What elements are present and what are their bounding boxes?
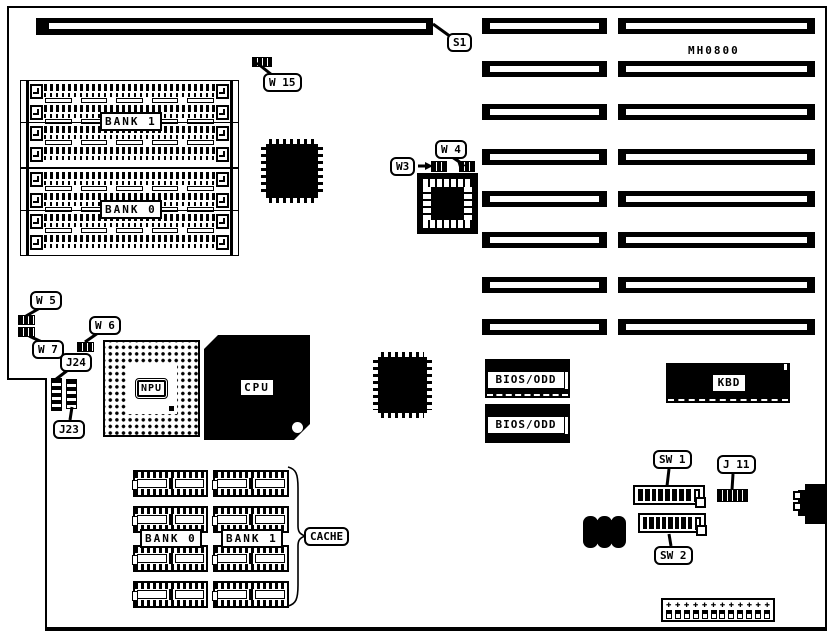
bank-edge-left — [26, 169, 29, 255]
power-pin-square — [728, 613, 734, 619]
simm-clip-right — [216, 105, 229, 120]
simm-clip-right — [216, 126, 229, 141]
switch-position-on — [665, 489, 670, 501]
expansion-slot — [482, 191, 607, 207]
switch-position-on — [681, 517, 685, 529]
expansion-slot — [482, 18, 607, 34]
simm-socket-row — [38, 235, 221, 248]
sw2-callout-tail — [669, 534, 671, 546]
qfp-chip-top — [266, 144, 318, 198]
simm-clip-left — [30, 214, 43, 229]
board-edge-left-lower — [45, 378, 47, 629]
board-edge-step — [7, 378, 47, 380]
simm-clip-left — [30, 105, 43, 120]
callout-cache: CACHE — [304, 527, 349, 546]
expansion-slot — [618, 104, 815, 120]
expansion-slot — [618, 149, 815, 165]
expansion-slot-key — [626, 196, 807, 202]
cache-dip-socket — [133, 545, 208, 572]
switch-position-on — [662, 517, 666, 529]
simm-socket-row — [38, 84, 221, 97]
power-pin-row-plus: ✚✚✚✚✚✚✚✚✚✚✚✚ — [666, 601, 770, 609]
power-pin-plus: ✚ — [764, 601, 769, 609]
expansion-slot — [482, 277, 607, 293]
switch-position-on — [672, 489, 677, 501]
npu-pin1-dot — [169, 406, 174, 411]
power-pin-square — [755, 613, 761, 619]
cache-dip-socket — [213, 470, 289, 497]
board-edge-right — [825, 6, 827, 631]
switch-position-on — [645, 489, 650, 501]
expansion-slot-key — [626, 282, 807, 288]
expansion-slot — [618, 61, 815, 77]
expansion-slot-key — [490, 109, 599, 115]
expansion-slot — [482, 232, 607, 248]
board-edge-bottom — [45, 627, 827, 631]
power-connector: ✚✚✚✚✚✚✚✚✚✚✚✚ — [661, 598, 775, 622]
simm-clip-right — [216, 84, 229, 99]
switch-position-on — [688, 517, 692, 529]
expansion-slot-key — [626, 324, 807, 330]
kbd-label: KBD — [713, 375, 745, 391]
simm-clip-left — [30, 147, 43, 162]
simm-clip-right — [216, 214, 229, 229]
npu-label: NPU — [137, 380, 166, 397]
j11-callout-tail — [732, 474, 733, 490]
power-pin-square — [764, 613, 770, 619]
dip-switch-sw1 — [633, 485, 705, 505]
simm-clip-left — [30, 126, 43, 141]
switch-corner-tab — [695, 497, 706, 508]
power-pin-plus: ✚ — [693, 601, 698, 609]
callout-w5: W 5 — [30, 291, 62, 310]
kbd-notch — [784, 364, 787, 370]
expansion-slot-key — [490, 196, 599, 202]
callout-w7: W 7 — [32, 340, 64, 359]
switch-position-on — [668, 517, 672, 529]
power-pin-square — [719, 613, 725, 619]
kbd-chip: KBD — [666, 363, 790, 403]
callout-w15: W 15 — [263, 73, 302, 92]
power-pin-plus: ✚ — [684, 601, 689, 609]
expansion-slot — [618, 319, 815, 335]
kbd-socket-line — [668, 399, 788, 401]
bank-edge-left — [26, 81, 29, 167]
npu-socket-center: NPU — [126, 363, 177, 414]
cache-bank1-label: BANK 1 — [221, 529, 283, 548]
expansion-slot-key — [626, 154, 807, 160]
simm-clip-left — [30, 193, 43, 208]
bank-edge-right — [230, 169, 233, 255]
cpu-chip: CPU — [204, 335, 310, 440]
simm-clip-left — [30, 84, 43, 99]
board-model-label: MH0800 — [688, 44, 740, 57]
bios-odd-top-notch — [565, 372, 568, 389]
power-pin-square — [737, 613, 743, 619]
power-pin-square — [666, 613, 672, 619]
switch-position-on — [686, 489, 691, 501]
bios-odd-chip-bottom: BIOS/ODD — [485, 404, 570, 443]
power-pin-plus: ✚ — [720, 601, 725, 609]
expansion-slot-key — [490, 66, 599, 72]
jumper-w5 — [18, 315, 35, 325]
expansion-slot-key — [626, 237, 807, 243]
expansion-slot-key — [626, 23, 807, 29]
capacitor-group — [583, 516, 625, 548]
cache-dip-socket — [133, 470, 208, 497]
callout-w4: W 4 — [435, 140, 467, 159]
qfp-chip-middle — [378, 357, 427, 413]
cache-dip-socket — [213, 581, 289, 608]
switch-position-on — [649, 517, 653, 529]
bank-edge-right — [230, 81, 233, 167]
switch-position-on — [638, 489, 643, 501]
callout-sw2: SW 2 — [654, 546, 693, 565]
expansion-slot — [482, 319, 607, 335]
cpu-label: CPU — [241, 380, 273, 395]
expansion-slot — [618, 232, 815, 248]
callout-j11: J 11 — [717, 455, 756, 474]
switch-position-on — [656, 517, 660, 529]
expansion-slot-key — [490, 324, 599, 330]
power-pin-square — [711, 613, 717, 619]
expansion-slot — [618, 18, 815, 34]
board-edge-top — [7, 6, 827, 8]
power-pin-plus: ✚ — [711, 601, 716, 609]
simm-spacer-row — [45, 98, 214, 103]
switch-position-on — [679, 489, 684, 501]
expansion-slot — [482, 104, 607, 120]
cache-dip-socket — [133, 581, 208, 608]
simm-clip-right — [216, 172, 229, 187]
plcc-socket — [417, 173, 478, 234]
dip-switch-sw2 — [638, 513, 706, 533]
jumper-w15 — [252, 57, 272, 67]
jumper-w3 — [431, 161, 447, 172]
expansion-slot-key — [490, 282, 599, 288]
expansion-slot-key — [626, 109, 807, 115]
simm-spacer-row — [45, 186, 214, 191]
power-pin-plus: ✚ — [747, 601, 752, 609]
s1-slot — [36, 18, 433, 35]
keyboard-connector-pin-top — [793, 491, 802, 500]
switch-corner-tab — [696, 525, 707, 536]
power-pin-plus: ✚ — [675, 601, 680, 609]
expansion-slot-key — [626, 66, 807, 72]
simm-clip-right — [216, 235, 229, 250]
s1-slot-key — [49, 23, 426, 29]
expansion-slot — [482, 61, 607, 77]
bios-odd-top-socket-line — [487, 394, 568, 396]
switch-position-on — [658, 489, 663, 501]
bios-odd-chip-top: BIOS/ODD — [485, 359, 570, 398]
power-pin-plus: ✚ — [756, 601, 761, 609]
power-pin-row-square — [666, 613, 770, 619]
header-j23 — [66, 379, 77, 409]
callout-w3: W3 — [390, 157, 415, 176]
simm-clip-left — [30, 235, 43, 250]
expansion-slot-key — [490, 237, 599, 243]
board-edge-left-upper — [7, 6, 9, 380]
simm-clip-right — [216, 147, 229, 162]
keyboard-connector-pin-bottom — [793, 502, 802, 511]
power-pin-square — [702, 613, 708, 619]
bios-odd-top-label: BIOS/ODD — [488, 372, 564, 388]
callout-sw1: SW 1 — [653, 450, 692, 469]
bios-odd-bottom-label: BIOS/ODD — [488, 417, 564, 433]
power-pin-plus: ✚ — [666, 601, 671, 609]
switch-position-on — [652, 489, 657, 501]
expansion-slot — [618, 277, 815, 293]
expansion-slot-key — [490, 154, 599, 160]
bank0-label: BANK 0 — [100, 200, 162, 219]
power-pin-plus: ✚ — [702, 601, 707, 609]
switch-position-on — [675, 517, 679, 529]
header-j24 — [51, 378, 62, 411]
callout-j23: J23 — [53, 420, 85, 439]
npu-socket: NPU — [103, 340, 200, 437]
cache-bank0-label: BANK 0 — [140, 529, 202, 548]
jumper-w6 — [77, 342, 94, 352]
cpu-pin1-dot — [292, 422, 303, 433]
power-pin-square — [746, 613, 752, 619]
simm-clip-right — [216, 193, 229, 208]
expansion-slot-key — [490, 23, 599, 29]
cache-dip-socket — [213, 545, 289, 572]
callout-s1: S1 — [447, 33, 472, 52]
jumper-w4 — [459, 161, 475, 172]
bank1-label: BANK 1 — [100, 112, 162, 131]
simm-socket-row — [38, 172, 221, 185]
callout-w6: W 6 — [89, 316, 121, 335]
simm-spacer-row — [45, 228, 214, 233]
simm-socket-row — [38, 147, 221, 160]
power-pin-square — [684, 613, 690, 619]
header-j11 — [717, 489, 748, 502]
keyboard-connector — [805, 484, 827, 524]
expansion-slot — [618, 191, 815, 207]
power-pin-plus: ✚ — [729, 601, 734, 609]
sw1-callout-tail — [667, 469, 669, 486]
expansion-slot — [482, 149, 607, 165]
power-pin-square — [693, 613, 699, 619]
bios-odd-bottom-notch — [565, 417, 568, 434]
switch-position-on — [643, 517, 647, 529]
motherboard-diagram: S1 MH0800 W 15 BANK 1 BANK 0 W3 W 4 W 5 … — [0, 0, 834, 637]
power-pin-square — [675, 613, 681, 619]
power-pin-plus: ✚ — [738, 601, 743, 609]
simm-spacer-row — [45, 140, 214, 145]
jumper-w7 — [18, 327, 35, 337]
callout-j24: J24 — [60, 353, 92, 372]
simm-clip-left — [30, 172, 43, 187]
